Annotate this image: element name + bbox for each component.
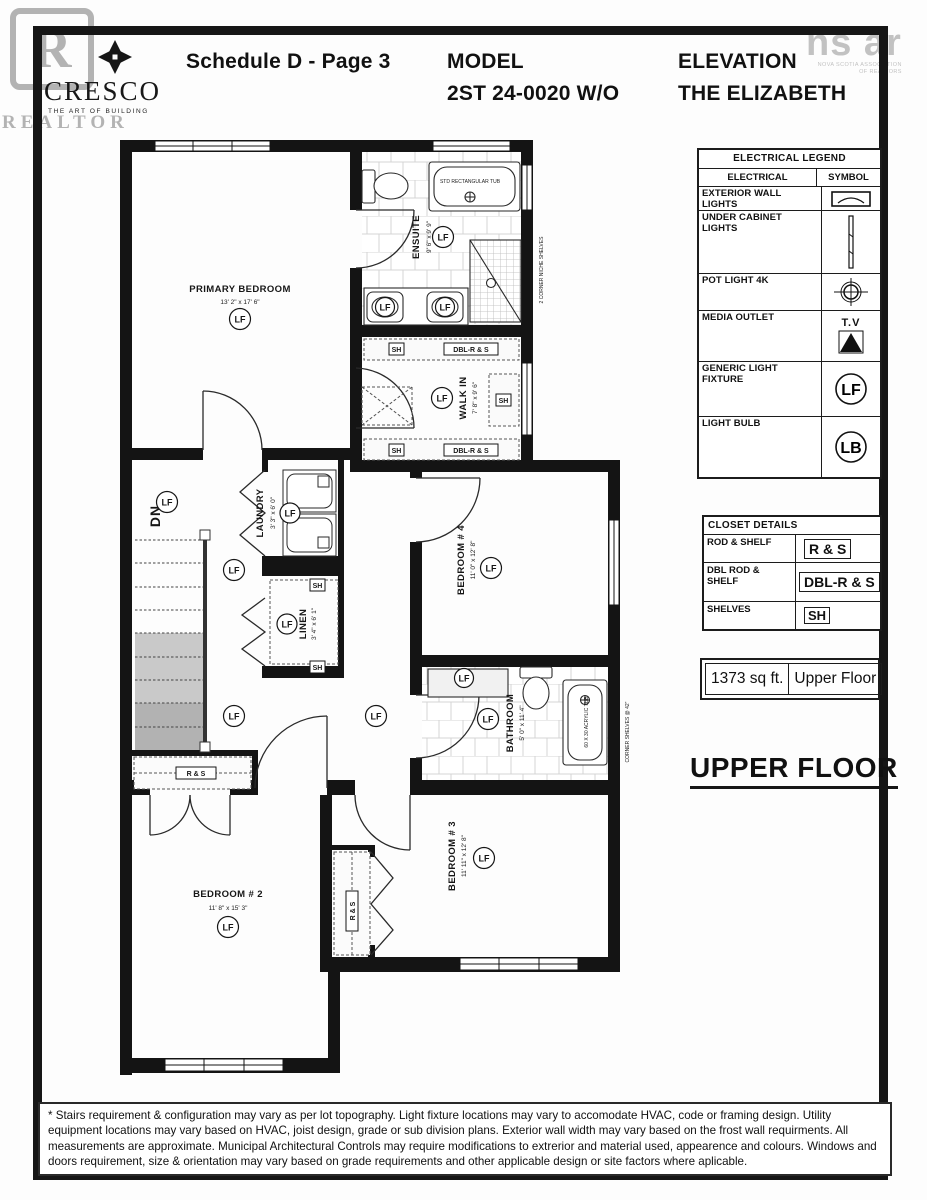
realtor-letter: R: [33, 18, 72, 80]
dblrs-tag-walkin-bottom: DBL-R & S: [444, 444, 498, 456]
svg-text:11' 8" x 15' 3": 11' 8" x 15' 3": [209, 905, 248, 912]
window-bedroom3-bottom: [460, 958, 578, 970]
cresco-logo-icon: [96, 38, 134, 81]
realtor-watermark-text: REALTOR: [2, 112, 129, 134]
schedule-title: Schedule D - Page 3: [186, 50, 391, 74]
tub-std-label: STD RECTANGULAR TUB: [440, 179, 501, 185]
lf-hall-lower-right: LF: [366, 706, 387, 727]
svg-text:LF: LF: [229, 712, 240, 722]
sh-tag-linen-top: SH: [310, 579, 325, 591]
area-table: 1373 sq ft. Upper Floor: [700, 658, 880, 700]
document-page: R REALTOR ns ar NOVA SCOTIA ASSOCIATION …: [0, 0, 927, 1200]
tv-outlet-icon: T.V: [822, 311, 880, 361]
svg-text:LF: LF: [841, 382, 861, 399]
lf-ensuite-sink1: LF: [376, 298, 395, 317]
rs-tag-bedroom3-closet: R & S: [346, 891, 358, 931]
window-bedroom4-right: [609, 520, 619, 605]
room-bedroom2: BEDROOM # 2 11' 8" x 15' 3": [193, 889, 263, 912]
sh-tag-linen-bottom: SH: [310, 661, 325, 673]
lf-bedroom3: LF: [474, 848, 495, 869]
lf-bedroom2: LF: [218, 917, 239, 938]
lf-bedroom4: LF: [481, 558, 502, 579]
legend-header-row: ELECTRICAL SYMBOL: [699, 169, 880, 187]
lf-hall-mid: LF: [224, 560, 245, 581]
wall-light-icon: [822, 187, 880, 210]
door-bedroom2-closet-double: [150, 795, 230, 835]
electrical-legend-table: ELECTRICAL LEGEND ELECTRICAL SYMBOL EXTE…: [697, 148, 882, 479]
svg-text:BATHROOM: BATHROOM: [505, 694, 516, 752]
nsar-logo-text: ns ar: [806, 24, 902, 62]
svg-text:LF: LF: [371, 712, 382, 722]
room-walkin: WALK IN 7' 8" x 9' 6": [458, 377, 479, 420]
model-label: MODEL: [447, 50, 524, 74]
svg-text:LF: LF: [235, 315, 246, 325]
window-ensuite-top: [433, 141, 510, 151]
lb-symbol-icon: LB: [822, 417, 880, 477]
sh-tag-walkin-right: SH: [496, 394, 511, 406]
svg-text:BEDROOM # 2: BEDROOM # 2: [193, 889, 263, 900]
closet-row-shelves: SHELVES SH: [704, 602, 880, 629]
svg-text:LF: LF: [162, 498, 173, 508]
legend-row-under-cabinet-lights: UNDER CABINET LIGHTS: [699, 211, 880, 274]
svg-text:R & S: R & S: [187, 771, 206, 778]
closet-details-title: CLOSET DETAILS: [704, 517, 880, 535]
lf-ensuite: LF: [433, 227, 454, 248]
legend-row-media-outlet: MEDIA OUTLET T.V: [699, 311, 880, 362]
stair-railing: [203, 536, 207, 750]
svg-text:LF: LF: [483, 715, 494, 725]
svg-text:BEDROOM # 4: BEDROOM # 4: [456, 525, 467, 595]
lf-bathroom: LF: [478, 709, 499, 730]
model-value: 2ST 24-0020 W/O: [447, 82, 619, 106]
svg-text:SH: SH: [499, 398, 509, 405]
svg-text:SH: SH: [392, 347, 402, 354]
rs-tag: R & S: [804, 539, 851, 559]
nsar-tagline-1: NOVA SCOTIA ASSOCIATION: [806, 62, 902, 69]
cresco-logo-name: CRESCO: [44, 76, 161, 107]
door-bedroom4: [416, 478, 480, 542]
svg-text:PRIMARY BEDROOM: PRIMARY BEDROOM: [189, 284, 291, 295]
svg-text:3' 4" x 6' 1": 3' 4" x 6' 1": [311, 607, 318, 640]
corner-shelves-note: CORNER SHELVES @ 42": [625, 701, 631, 762]
closet-row-rod-shelf: ROD & SHELF R & S: [704, 535, 880, 563]
svg-text:LF: LF: [438, 233, 449, 243]
svg-text:DBL-R & S: DBL-R & S: [453, 448, 489, 455]
svg-text:LF: LF: [282, 620, 293, 630]
svg-text:LF: LF: [285, 509, 296, 519]
room-primary-bedroom: PRIMARY BEDROOM 13' 2" x 17' 6": [189, 284, 291, 306]
svg-text:LINEN: LINEN: [298, 609, 309, 640]
svg-text:BEDROOM # 3: BEDROOM # 3: [447, 821, 458, 891]
window-ensuite-right: [522, 165, 532, 210]
room-laundry: LAUNDRY 3' 3" x 6' 0": [255, 488, 277, 537]
legend-row-light-bulb: LIGHT BULB LB: [699, 417, 880, 477]
svg-text:LB: LB: [840, 440, 861, 457]
svg-text:R & S: R & S: [350, 901, 357, 920]
floor-title: UPPER FLOOR: [690, 752, 898, 789]
svg-text:13' 2" x 17' 6": 13' 2" x 17' 6": [220, 299, 260, 306]
closet-row-dbl-rod-shelf: DBL ROD & SHELF DBL-R & S: [704, 563, 880, 602]
svg-text:11' 11" x 12' 8": 11' 11" x 12' 8": [461, 834, 468, 877]
svg-text:11' 0" x 12' 8": 11' 0" x 12' 8": [470, 540, 477, 579]
window-bedroom2-bottom: [165, 1059, 283, 1071]
dblrs-tag-walkin-top: DBL-R & S: [444, 343, 498, 355]
door-bedroom2: [255, 716, 327, 788]
niche-note: 2 CORNER NICHE SHELVES: [539, 236, 545, 304]
svg-text:LF: LF: [479, 854, 490, 864]
legend-col-symbol: SYMBOL: [817, 169, 880, 186]
legend-col-electrical: ELECTRICAL: [699, 169, 817, 186]
svg-text:LF: LF: [440, 303, 451, 313]
svg-text:WALK IN: WALK IN: [458, 377, 469, 420]
lf-linen: LF: [277, 614, 297, 634]
legend-row-generic-light-fixture: GENERIC LIGHT FIXTURE LF: [699, 362, 880, 417]
door-bedroom3-closet-bifold: [371, 852, 393, 955]
svg-text:LF: LF: [223, 923, 234, 933]
window-walkin-right: [522, 363, 532, 435]
svg-text:3' 3" x 6' 0": 3' 3" x 6' 0": [270, 496, 277, 529]
sh-tag-walkin-top: SH: [389, 343, 404, 355]
pot-light-icon: [822, 274, 880, 310]
svg-text:SH: SH: [313, 665, 323, 672]
sh-tag: SH: [804, 607, 830, 624]
door-walkin: [356, 368, 414, 428]
bathtub-ensuite: [429, 162, 520, 211]
room-bedroom3: BEDROOM # 3 11' 11" x 12' 8": [447, 821, 468, 891]
svg-text:ENSUITE: ENSUITE: [411, 215, 422, 259]
dblrs-tag: DBL-R & S: [799, 572, 880, 592]
door-bedroom3: [355, 795, 410, 850]
lf-hall-top: LF: [157, 492, 178, 513]
svg-text:LF: LF: [380, 303, 391, 313]
svg-text:7' 8" x 9' 6": 7' 8" x 9' 6": [472, 381, 479, 414]
stairs: DN: [135, 505, 210, 752]
lf-symbol-icon: LF: [822, 362, 880, 416]
nsar-tagline-2: OF REALTORS: [806, 69, 902, 76]
svg-text:LF: LF: [229, 566, 240, 576]
svg-text:SH: SH: [392, 448, 402, 455]
elevation-label: ELEVATION: [678, 50, 797, 74]
room-linen: LINEN 3' 4" x 6' 1": [298, 607, 318, 640]
disclaimer-footer: * Stairs requirement & configuration may…: [38, 1102, 892, 1176]
shower-ensuite: [470, 240, 521, 322]
lf-bath-vanity: LF: [455, 669, 474, 688]
nsar-watermark: ns ar NOVA SCOTIA ASSOCIATION OF REALTOR…: [806, 24, 902, 76]
room-bedroom4: BEDROOM # 4 11' 0" x 12' 8": [456, 525, 477, 595]
door-primary-bedroom: [203, 391, 262, 450]
lf-primary: LF: [230, 309, 251, 330]
legend-row-pot-light: POT LIGHT 4K: [699, 274, 880, 311]
lf-laundry: LF: [280, 503, 300, 523]
sh-tag-walkin-bottom: SH: [389, 444, 404, 456]
svg-text:LF: LF: [437, 394, 448, 404]
legend-row-exterior-wall-lights: EXTERIOR WALL LIGHTS: [699, 187, 880, 211]
elevation-value: THE ELIZABETH: [678, 82, 846, 106]
svg-text:5' 0" x 11' 4": 5' 0" x 11' 4": [519, 705, 526, 741]
door-linen-bifold: [242, 598, 265, 666]
rs-tag-bedroom2-closet: R & S: [176, 767, 216, 779]
area-floor: Upper Floor: [789, 664, 881, 694]
cresco-logo-tagline: THE ART OF BUILDING: [48, 108, 149, 115]
window-primary-top: [155, 141, 270, 151]
tub-main-label: 60 X 30 ACRYLIC TUB: [584, 696, 590, 748]
area-sqft: 1373 sq ft.: [706, 664, 789, 694]
lf-hall-lower-left: LF: [224, 706, 245, 727]
legend-title: ELECTRICAL LEGEND: [699, 150, 880, 169]
svg-text:DBL-R & S: DBL-R & S: [453, 347, 489, 354]
lf-ensuite-sink2: LF: [436, 298, 455, 317]
floor-plan: DN: [112, 136, 642, 1084]
under-cabinet-light-icon: [822, 211, 880, 273]
svg-text:LF: LF: [486, 564, 497, 574]
svg-text:SH: SH: [313, 583, 323, 590]
svg-text:LAUNDRY: LAUNDRY: [255, 488, 266, 537]
svg-text:LF: LF: [459, 674, 470, 684]
lf-walkin: LF: [432, 388, 453, 409]
closet-details-table: CLOSET DETAILS ROD & SHELF R & S DBL ROD…: [702, 515, 882, 631]
